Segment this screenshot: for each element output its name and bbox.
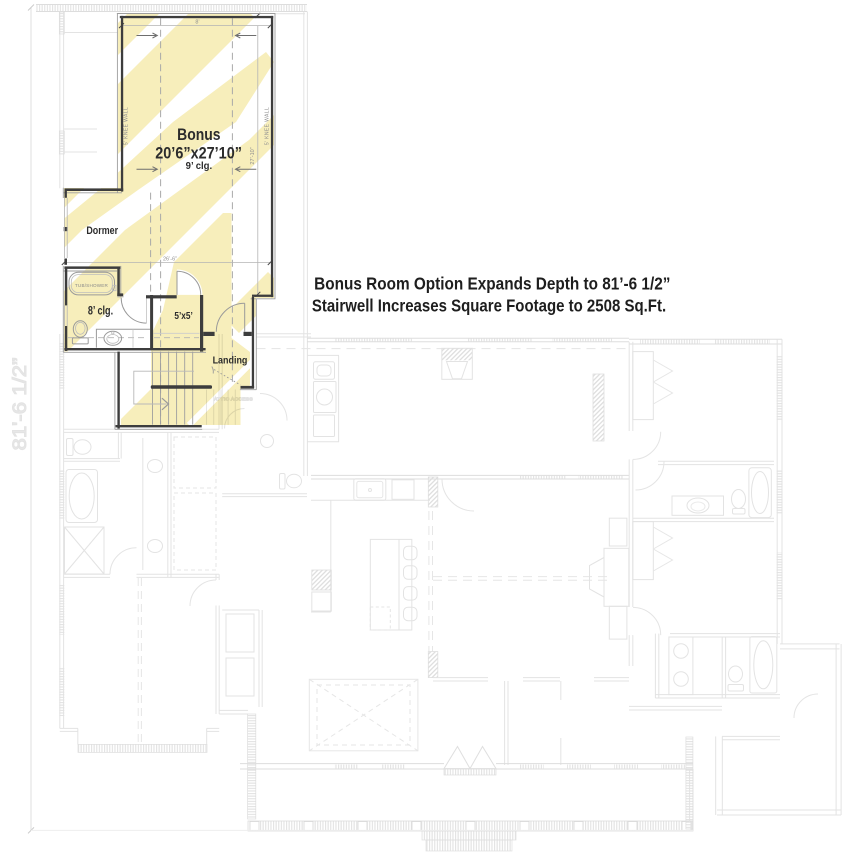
svg-text:8’: 8’: [195, 20, 199, 26]
svg-text:Bonus: Bonus: [177, 126, 220, 144]
svg-text:Bonus Room Option Expands Dept: Bonus Room Option Expands Depth to 81’-6…: [314, 273, 670, 293]
svg-text:81'-6 1/2”: 81'-6 1/2”: [10, 358, 31, 451]
svg-text:Stairwell Increases Square Foo: Stairwell Increases Square Footage to 25…: [312, 295, 666, 315]
svg-text:5’ KNEE WALL: 5’ KNEE WALL: [124, 107, 130, 145]
svg-text:Dormer: Dormer: [86, 225, 118, 237]
svg-text:26’-6”: 26’-6”: [163, 256, 177, 262]
svg-text:5’x5’: 5’x5’: [174, 311, 193, 322]
svg-text:5’ KNEE WALL: 5’ KNEE WALL: [265, 107, 271, 145]
svg-text:27’-10”: 27’-10”: [250, 147, 256, 164]
svg-text:8’ clg.: 8’ clg.: [88, 304, 113, 318]
svg-text:Landing: Landing: [213, 356, 248, 367]
svg-text:9’ clg.: 9’ clg.: [186, 161, 213, 172]
svg-text:TUB/SHOWER: TUB/SHOWER: [75, 283, 109, 288]
